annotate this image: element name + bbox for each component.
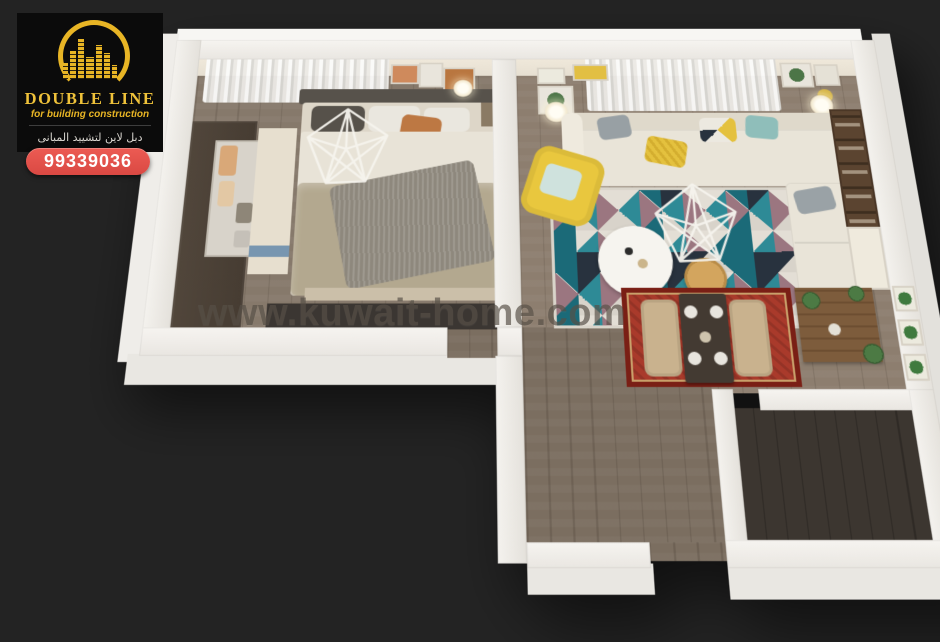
living-curtains xyxy=(585,59,782,111)
living-art-frame xyxy=(815,66,838,84)
geometric-wireframe-pendant-icon xyxy=(646,181,747,268)
logo-arabic-line: دبل لاين لتشييد المبانى xyxy=(17,131,163,144)
dining-chair xyxy=(640,300,683,377)
bedroom-bottom-outer-face xyxy=(124,354,511,385)
emptyroom-bottom-outer-face xyxy=(727,564,940,600)
render-stage: www.kuwait-home.com DOUBLE LINE for buil… xyxy=(0,0,940,600)
logo-subtitle: for building construction xyxy=(17,109,163,120)
hanging-clothes xyxy=(217,181,235,206)
geometric-wireframe-pendant-icon xyxy=(297,106,394,190)
entry-floor-patch xyxy=(649,542,727,561)
coffee-table-decor xyxy=(625,247,634,255)
throw-pillow-patterned xyxy=(699,118,738,142)
table-centerpiece xyxy=(699,331,711,342)
place-setting-plate xyxy=(687,352,702,365)
bedside-rug-stripe xyxy=(248,246,289,257)
folded-clothes xyxy=(235,203,253,223)
living-art-frame xyxy=(539,69,564,82)
wall-green-print xyxy=(905,356,928,379)
wall-green-print xyxy=(894,288,916,310)
company-logo-panel: DOUBLE LINE for building construction دب… xyxy=(17,13,163,152)
empty-room-bottom-wall xyxy=(725,540,940,568)
bedside-lamp xyxy=(453,79,474,97)
building-skyline-icon xyxy=(63,35,117,79)
top-wall xyxy=(174,40,865,59)
hallway-left-wall xyxy=(495,356,527,564)
hallway-bottom-wall xyxy=(527,542,651,568)
throw-pillow-teal xyxy=(745,115,778,140)
folded-clothes xyxy=(233,231,250,248)
place-setting-plate xyxy=(709,305,724,318)
hanging-clothes xyxy=(218,146,238,176)
living-art-frame xyxy=(574,66,607,79)
phone-badge: 99339036 xyxy=(26,148,150,175)
logo-title: DOUBLE LINE xyxy=(17,89,163,109)
living-art-frame xyxy=(781,64,812,85)
logo-divider xyxy=(29,125,151,126)
bedroom-art-frame xyxy=(392,66,417,83)
place-setting-plate xyxy=(713,352,728,365)
coffee-table-decor xyxy=(637,259,648,269)
throw-pillow-gray xyxy=(596,114,633,140)
place-setting-plate xyxy=(684,305,698,318)
empty-room-floor xyxy=(732,408,935,544)
wall-green-print xyxy=(900,321,922,343)
bedroom-art-frame xyxy=(421,64,442,85)
watermark-text: www.kuwait-home.com xyxy=(198,292,626,335)
